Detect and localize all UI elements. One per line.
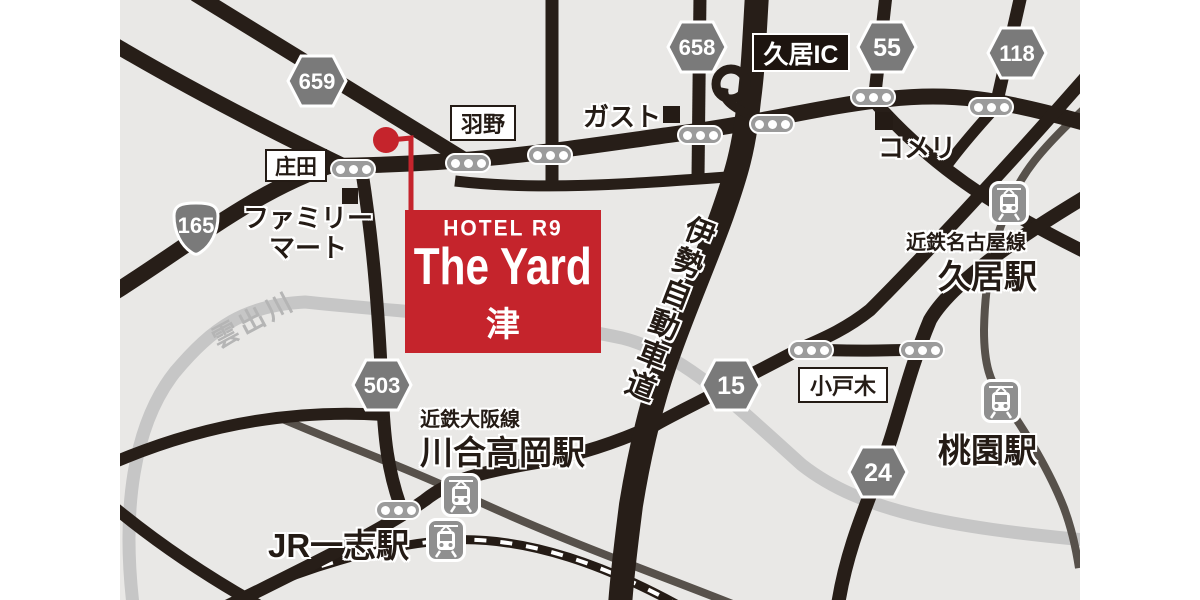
- label-komeri: コメリ: [878, 128, 956, 165]
- label-obeki: 小戸木: [798, 367, 888, 403]
- route-badge-165: 165: [164, 199, 228, 259]
- label-hisai-ic-text: 久居IC: [763, 35, 838, 71]
- road-sw-corner: [120, 508, 258, 600]
- label-gusto: ガスト: [583, 97, 661, 134]
- hotel-city: 津: [486, 297, 520, 346]
- route-badge-15: 15: [699, 357, 763, 413]
- label-jr-ichishi-station: JR一志駅: [268, 519, 409, 567]
- svg-text:55: 55: [873, 34, 901, 62]
- svg-text:165: 165: [178, 213, 215, 238]
- svg-text:658: 658: [679, 35, 716, 60]
- gusto-marker-icon: [663, 106, 680, 123]
- route-badge-24: 24: [846, 444, 910, 500]
- traffic-light-icon: [527, 145, 573, 165]
- road-arc-west: [120, 414, 385, 462]
- momozono-station-icon: [981, 379, 1021, 423]
- route-badge-55: 55: [855, 19, 919, 75]
- label-shoda-text: 庄田: [275, 151, 317, 181]
- route-badge-503: 503: [350, 357, 414, 413]
- map-screenshot: 659 658 55 118 15 24 503 165 久居IC 庄田 羽野 …: [0, 0, 1200, 600]
- svg-text:15: 15: [717, 372, 745, 400]
- label-kawai-takaoka-station: 川合高岡駅: [420, 426, 585, 474]
- traffic-light-icon: [899, 340, 945, 360]
- label-familymart: ファミリーマート: [238, 204, 378, 264]
- label-hisai-station: 久居駅: [938, 250, 1037, 298]
- traffic-light-icon: [788, 340, 834, 360]
- traffic-light-icon: [677, 125, 723, 145]
- label-obeki-text: 小戸木: [810, 369, 876, 401]
- route-badge-659: 659: [285, 53, 349, 109]
- map-canvas: 659 658 55 118 15 24 503 165 久居IC 庄田 羽野 …: [120, 0, 1080, 600]
- label-momozono-station: 桃園駅: [938, 424, 1037, 472]
- label-hano-text: 羽野: [461, 107, 505, 139]
- jr-ichishi-station-icon: [426, 518, 466, 562]
- svg-text:503: 503: [364, 373, 401, 398]
- traffic-light-icon: [330, 159, 376, 179]
- route-badge-118: 118: [985, 25, 1049, 81]
- kawai-takaoka-station-icon: [441, 473, 481, 517]
- label-hisai-ic: 久居IC: [752, 33, 850, 72]
- traffic-light-icon: [850, 87, 896, 107]
- traffic-light-icon: [968, 97, 1014, 117]
- svg-text:24: 24: [864, 459, 892, 487]
- hotel-location-dot: [373, 127, 399, 153]
- hotel-callout: HOTEL R9 The Yard 津: [405, 210, 601, 353]
- label-shoda: 庄田: [265, 149, 327, 182]
- traffic-light-icon: [445, 153, 491, 173]
- svg-text:659: 659: [299, 69, 336, 94]
- hisai-station-icon: [989, 181, 1029, 225]
- familymart-marker-icon: [342, 188, 358, 204]
- label-hano: 羽野: [450, 105, 516, 141]
- traffic-light-icon: [749, 114, 795, 134]
- hotel-name: The Yard: [414, 238, 592, 295]
- traffic-light-icon: [375, 500, 421, 520]
- route-badge-658: 658: [665, 19, 729, 75]
- svg-text:118: 118: [999, 41, 1035, 66]
